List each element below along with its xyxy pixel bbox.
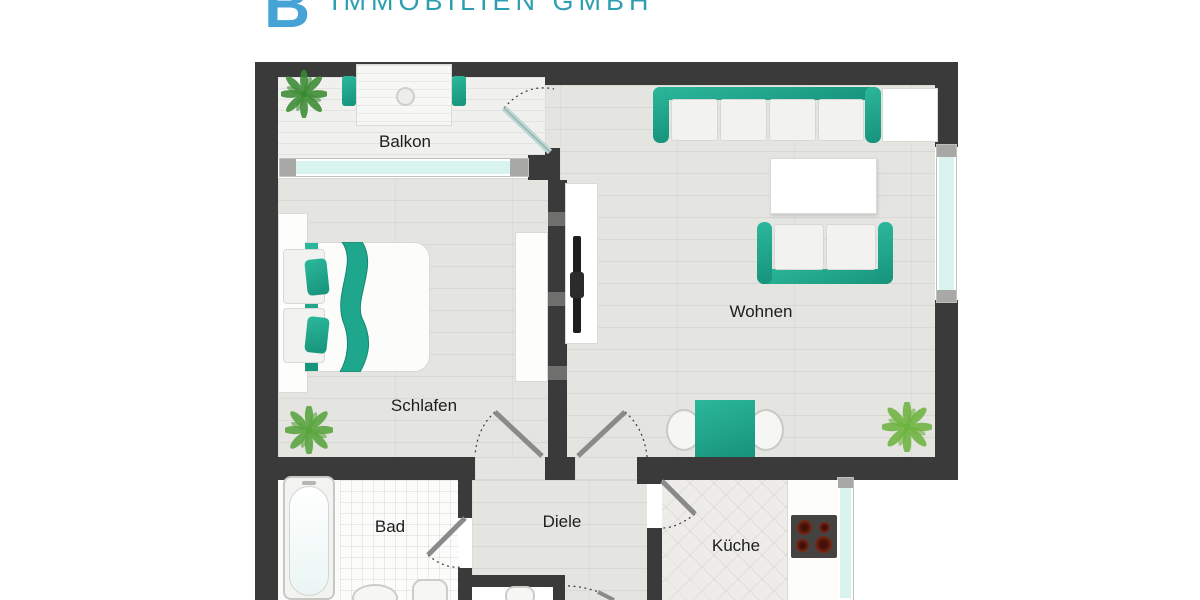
wall-segment-light — [548, 366, 567, 380]
window-cap — [510, 159, 528, 176]
stove-icon — [791, 515, 837, 558]
floor-plan-page: B IMMOBILIEN GMBH — [0, 0, 1200, 600]
plant-icon — [281, 70, 327, 118]
burner-icon — [815, 536, 832, 553]
side-table — [882, 88, 938, 142]
room-label-kueche: Küche — [696, 536, 776, 556]
wall-diele-kueche — [647, 528, 662, 600]
bed-runner-blanket — [330, 242, 380, 372]
wall-left — [255, 62, 278, 600]
burner-icon — [796, 539, 809, 552]
bed-cushion-small — [304, 316, 330, 354]
bathtub-basin — [289, 486, 329, 596]
sink — [412, 579, 448, 600]
wall-band-wohnen-kueche — [637, 457, 958, 480]
room-label-schlafen: Schlafen — [374, 396, 474, 416]
sofa-arm — [865, 87, 881, 143]
sofa-arm — [878, 222, 893, 284]
room-label-wohnen: Wohnen — [711, 302, 811, 322]
plant-icon — [285, 406, 333, 454]
bed-cushion-small — [304, 258, 330, 296]
door-swing-kueche — [655, 478, 707, 534]
inner-room-sink — [505, 586, 535, 600]
balcony-chair-left — [342, 76, 356, 106]
burner-icon — [819, 522, 830, 533]
window-kueche-right — [838, 478, 853, 600]
sofa-small — [757, 222, 893, 284]
sofa-arm — [653, 87, 669, 143]
sofa-back — [757, 269, 893, 284]
wall-right-lower — [935, 300, 958, 480]
dining-table — [695, 400, 755, 457]
tv-board — [565, 183, 598, 344]
room-label-balkon: Balkon — [355, 132, 455, 152]
wall-right-upper — [935, 85, 958, 147]
door-swing-entrance — [540, 578, 620, 600]
window-cap — [937, 290, 956, 302]
tv-mount — [570, 272, 584, 298]
room-label-bad: Bad — [350, 517, 430, 537]
diele-door-patch-wohnen — [575, 457, 637, 480]
sofa-large — [653, 87, 881, 144]
wall-window-row-block — [528, 155, 560, 180]
window-cap — [937, 145, 956, 157]
balcony-chair-right — [452, 76, 466, 106]
bathtub-faucet-icon — [302, 481, 316, 485]
door-swing-wohnen — [573, 403, 653, 459]
brand-logo-initial: B — [264, 0, 310, 42]
window-cap — [838, 478, 853, 488]
window-wohnen-right — [937, 145, 956, 302]
burner-icon — [797, 520, 812, 535]
coffee-table — [770, 158, 877, 214]
window-balkon-schlafen — [280, 159, 528, 176]
balcony-table-knob — [396, 87, 415, 106]
wall-band-center-stub — [545, 457, 575, 480]
wall-top-wohnen — [545, 62, 958, 85]
sofa-arm — [757, 222, 772, 284]
brand-logo-text: IMMOBILIEN GMBH — [331, 0, 654, 17]
door-swing-schlafen — [468, 403, 548, 459]
window-cap — [280, 159, 296, 176]
door-swing-balkon — [498, 83, 558, 158]
wall-bad-diele-lower — [458, 568, 472, 600]
dresser — [515, 232, 548, 382]
diele-door-patch-schlafen — [475, 457, 545, 480]
plant-icon — [882, 402, 932, 452]
room-label-diele: Diele — [522, 512, 602, 532]
